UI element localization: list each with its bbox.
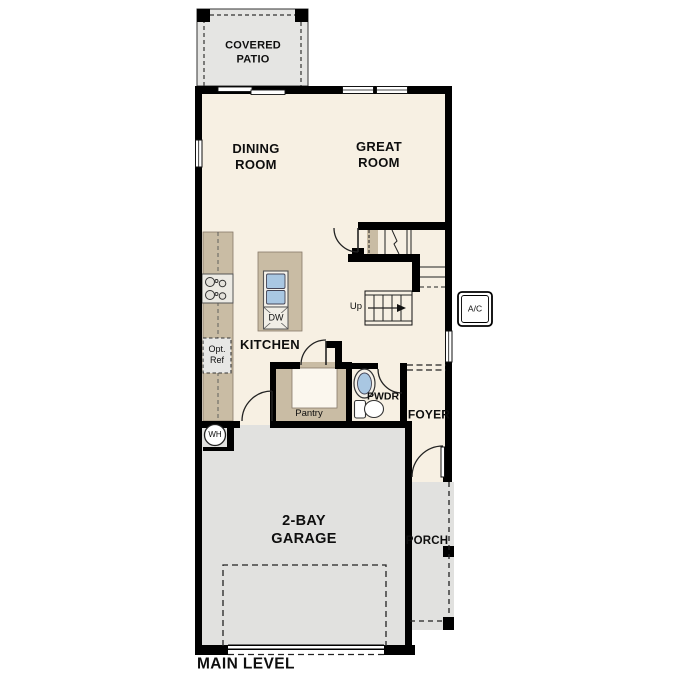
garage-label: 2-BAY GARAGE: [271, 513, 336, 549]
burner-icon: [206, 278, 215, 287]
opt-ref-line2: Ref: [208, 355, 225, 366]
garage-line2: GARAGE: [271, 531, 336, 549]
sink-bowl-icon: [267, 291, 286, 305]
kitchen-label: KITCHEN: [240, 337, 300, 353]
wall: [412, 254, 420, 292]
wall: [358, 222, 452, 230]
sink-bowl-icon: [267, 274, 286, 289]
covered-patio-line2: PATIO: [225, 53, 281, 67]
wall: [346, 363, 378, 369]
sliding-door-panel: [218, 87, 252, 92]
pantry-inner: [292, 368, 337, 408]
porch-post: [443, 617, 454, 630]
wall: [273, 421, 412, 428]
burner-icon: [206, 291, 215, 300]
dishwasher-label: DW: [269, 312, 284, 323]
wall: [346, 362, 352, 427]
covered-patio-line1: COVERED: [225, 39, 281, 53]
pantry-label: Pantry: [295, 408, 322, 420]
great-room-line1: GREAT: [356, 139, 402, 155]
garage-door-line: [228, 649, 384, 651]
wall: [445, 86, 452, 482]
covered-patio-label: COVERED PATIO: [225, 39, 281, 66]
wall: [400, 363, 407, 427]
wall: [348, 254, 420, 262]
wall: [384, 645, 415, 655]
sliding-door-panel: [251, 90, 285, 95]
foyer-label: FOYER: [408, 408, 450, 423]
opt-ref-line1: Opt.: [208, 344, 225, 355]
floor-plan-drawing: [0, 0, 687, 687]
wall: [405, 475, 412, 482]
powder-room-label: PWDR: [367, 390, 399, 403]
porch-label: PORCH: [406, 534, 449, 548]
floor-plan: COVERED PATIO DINING ROOM GREAT ROOM KIT…: [0, 0, 687, 687]
water-heater-label: WH: [208, 430, 221, 440]
floor-fills: [197, 9, 454, 645]
wall: [227, 421, 234, 451]
toilet-tank-icon: [355, 401, 366, 419]
patio-post-right: [295, 9, 308, 22]
front-door-leaf: [441, 447, 445, 477]
great-room-line2: ROOM: [356, 155, 402, 171]
ac-unit-label: A/C: [468, 304, 482, 315]
burner-icon: [219, 293, 226, 300]
optional-refrigerator-label: Opt. Ref: [208, 344, 225, 366]
level-title: MAIN LEVEL: [197, 654, 295, 673]
patio-post-left: [197, 9, 210, 22]
stairs-up-label: Up: [350, 301, 362, 313]
dining-room-label: DINING ROOM: [232, 141, 279, 173]
wall: [195, 86, 202, 655]
dining-room-line1: DINING: [232, 141, 279, 157]
burner-icon: [219, 280, 226, 287]
wall: [203, 447, 234, 451]
great-room-label: GREAT ROOM: [356, 139, 402, 171]
dining-room-line2: ROOM: [232, 157, 279, 173]
wall: [326, 341, 342, 348]
garage-door-line: [228, 645, 384, 647]
garage-line1: 2-BAY: [271, 513, 336, 531]
wall: [270, 362, 276, 427]
